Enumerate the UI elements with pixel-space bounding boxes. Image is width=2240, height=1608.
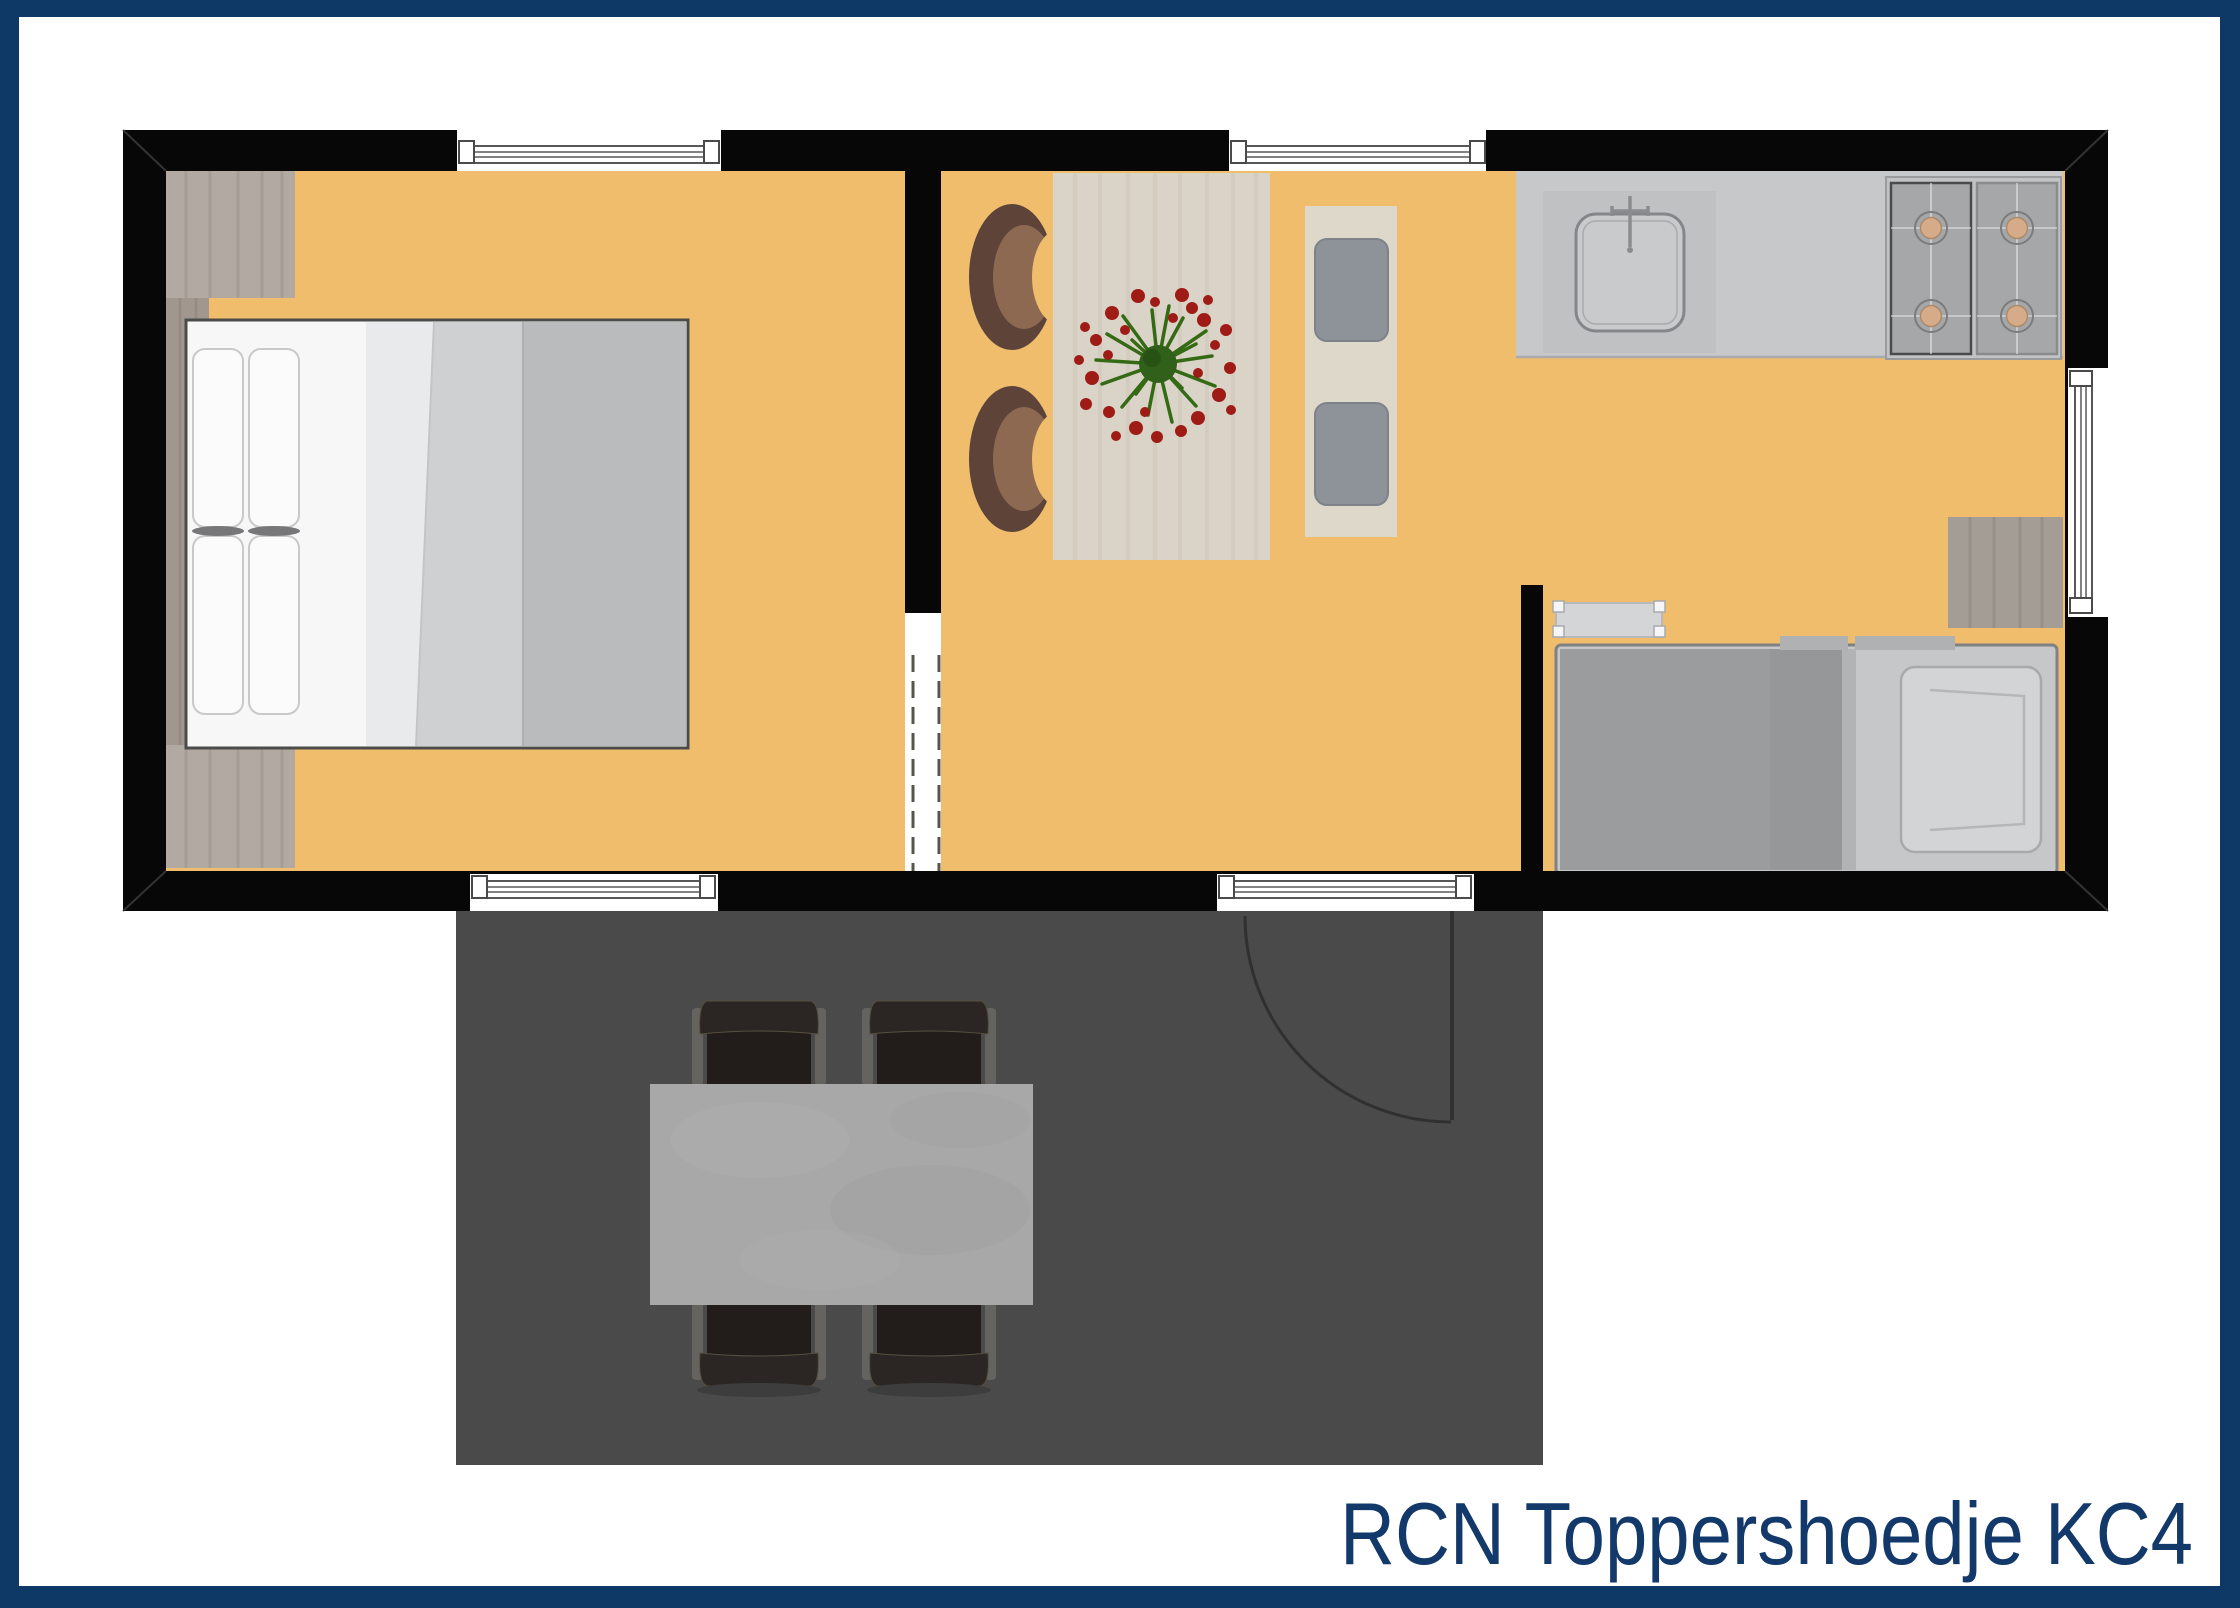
svg-text:RCN Toppershoedje KC4: RCN Toppershoedje KC4: [1340, 1484, 2193, 1583]
